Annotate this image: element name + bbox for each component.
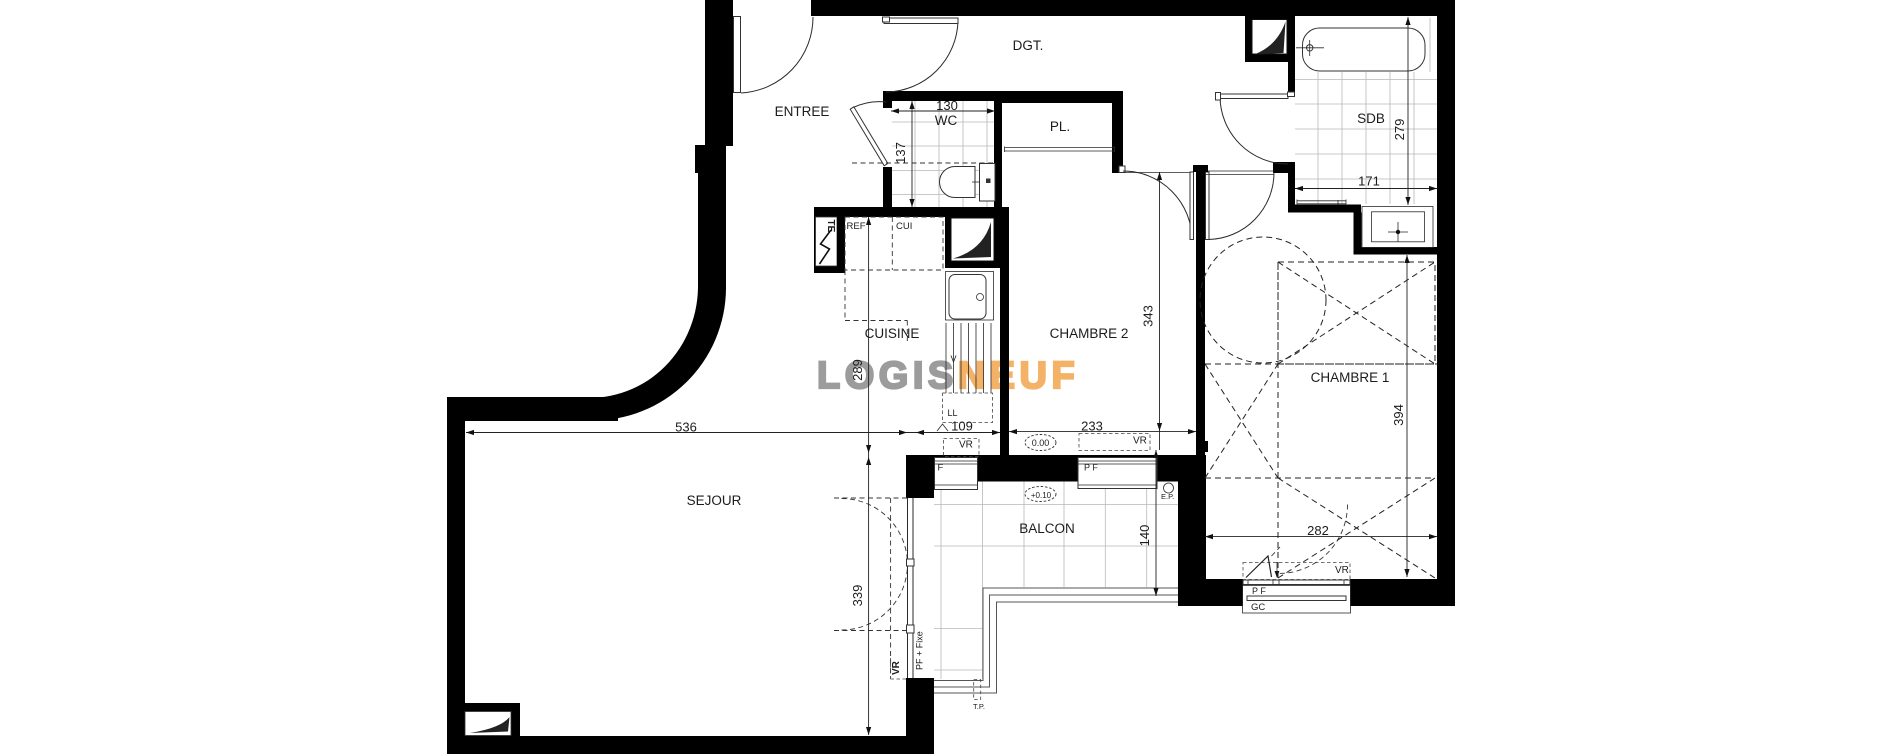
svg-text:CHAMBRE 2: CHAMBRE 2 <box>1050 326 1129 341</box>
svg-text:DGT.: DGT. <box>1013 38 1044 53</box>
svg-text:VR: VR <box>891 660 902 675</box>
svg-text:T.P.: T.P. <box>973 702 985 711</box>
svg-text:171: 171 <box>1358 174 1380 189</box>
svg-text:GC: GC <box>1251 602 1265 613</box>
svg-text:P F: P F <box>1252 586 1266 596</box>
svg-text:130: 130 <box>936 98 958 113</box>
svg-text:REF: REF <box>847 221 866 232</box>
svg-text:VR: VR <box>1133 436 1147 447</box>
svg-text:F: F <box>938 463 944 474</box>
svg-text:339: 339 <box>850 585 865 607</box>
svg-text:CUISINE: CUISINE <box>865 326 920 341</box>
svg-text:ENTREE: ENTREE <box>775 104 830 119</box>
svg-text:+0.10: +0.10 <box>1031 491 1052 500</box>
svg-text:LL: LL <box>948 408 958 418</box>
svg-text:V: V <box>951 354 957 364</box>
svg-text:394: 394 <box>1391 404 1406 426</box>
svg-text:E.P.: E.P. <box>1161 492 1174 501</box>
svg-text:BALCON: BALCON <box>1019 521 1075 536</box>
svg-text:343: 343 <box>1141 305 1156 327</box>
svg-text:282: 282 <box>1307 523 1329 538</box>
svg-text:CUI: CUI <box>896 221 912 232</box>
svg-text:WC: WC <box>935 113 958 128</box>
svg-text:233: 233 <box>1081 419 1103 434</box>
svg-text:279: 279 <box>1392 119 1407 141</box>
svg-text:536: 536 <box>675 420 697 435</box>
svg-text:140: 140 <box>1137 525 1152 547</box>
svg-text:VR: VR <box>959 440 973 451</box>
svg-text:289: 289 <box>850 359 865 381</box>
svg-text:SDB: SDB <box>1357 111 1385 126</box>
svg-text:P F: P F <box>1084 463 1098 473</box>
svg-text:137: 137 <box>893 142 908 164</box>
svg-text:109: 109 <box>951 419 973 434</box>
svg-text:SEJOUR: SEJOUR <box>687 493 742 508</box>
svg-text:CHAMBRE 1: CHAMBRE 1 <box>1311 370 1390 385</box>
svg-text:PL.: PL. <box>1050 119 1070 134</box>
svg-text:PF + Fixe: PF + Fixe <box>915 631 925 670</box>
svg-text:VR: VR <box>1335 565 1349 576</box>
svg-text:0.00: 0.00 <box>1032 438 1050 448</box>
